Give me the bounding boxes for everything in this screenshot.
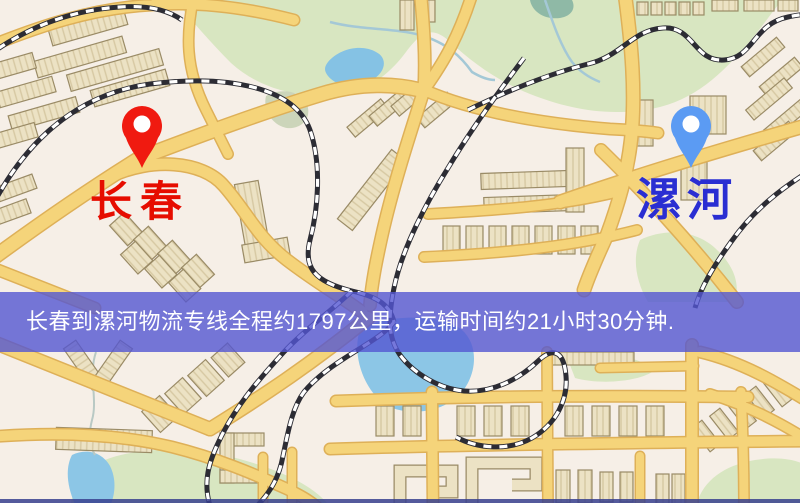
- map-canvas[interactable]: [0, 0, 800, 503]
- destination-city-label: 漯河: [636, 177, 738, 222]
- origin-city-label: 长春: [90, 181, 190, 223]
- route-info-banner: 长春到漯河物流专线全程约1797公里，运输时间约21小时30分钟.: [0, 292, 800, 352]
- pin-hole: [683, 116, 700, 133]
- map-bottom-edge: [0, 499, 800, 503]
- pin-hole: [134, 116, 151, 133]
- logistics-route-map: 长春 漯河 长春到漯河物流专线全程约1797公里，运输时间约21小时30分钟.: [0, 0, 800, 503]
